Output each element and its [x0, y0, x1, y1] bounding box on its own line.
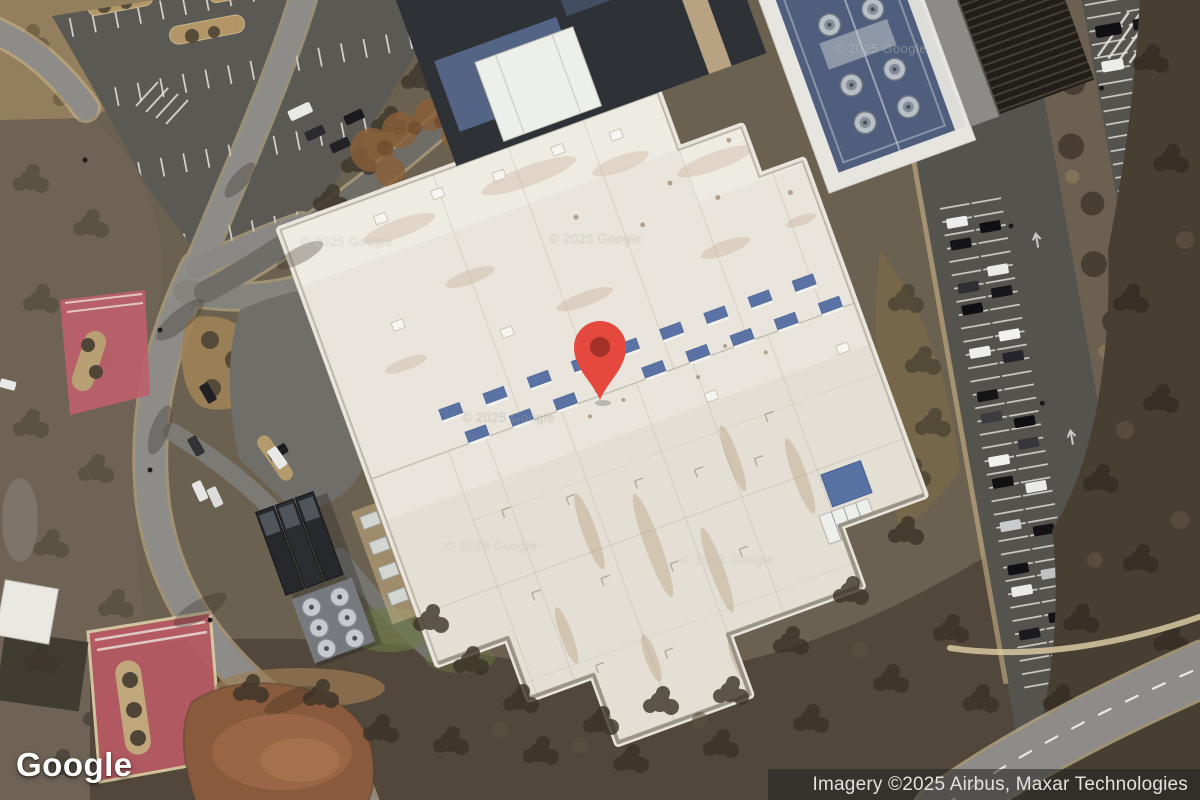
- pin-inner-dot: [590, 337, 610, 357]
- map-canvas[interactable]: © 2025 Google © 2025 Google © 2025 Googl…: [0, 0, 1200, 800]
- attribution-bar: Imagery ©2025 Airbus, Maxar Technologies: [768, 769, 1200, 800]
- pink-plaza-north: [60, 290, 150, 415]
- map-pin-icon[interactable]: [570, 314, 630, 402]
- google-logo[interactable]: Google: [16, 746, 133, 784]
- pin-body[interactable]: [574, 321, 626, 400]
- attribution-text: Imagery ©2025 Airbus, Maxar Technologies: [813, 774, 1188, 796]
